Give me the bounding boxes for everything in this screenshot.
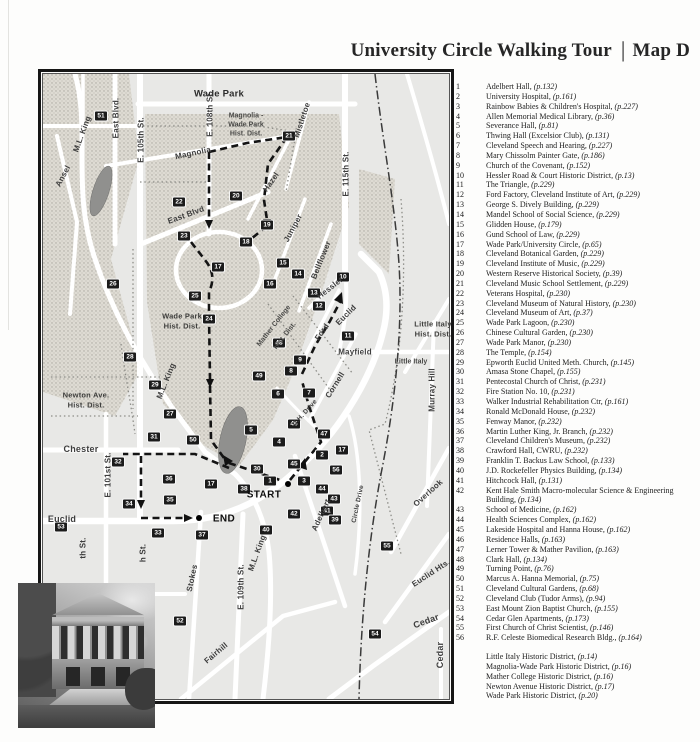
legend-item-number: 2 <box>456 92 486 102</box>
legend-item: 29Epworth Euclid United Meth. Church, (p… <box>456 358 696 368</box>
legend-item-number: 31 <box>456 377 486 387</box>
legend-item: 51Cleveland Cultural Gardens, (p.68) <box>456 584 696 594</box>
legend-item-number: 39 <box>456 456 486 466</box>
legend-item-name: Wade Park/University Circle, (p.65) <box>486 240 696 250</box>
legend-item: Newton Avenue Historic District, (p.17) <box>456 682 696 692</box>
legend-districts: Little Italy Historic District, (p.14)Ma… <box>456 652 696 701</box>
legend-item-number: 56 <box>456 633 486 643</box>
legend-item: 45Lakeside Hospital and Hanna House, (p.… <box>456 525 696 535</box>
legend-item: 52Cleveland Club (Tudor Arms), (p.94) <box>456 594 696 604</box>
legend-item-name: Church of the Covenant, (p.152) <box>486 161 696 171</box>
legend-item: 34Ronald McDonald House, (p.232) <box>456 407 696 417</box>
legend-item-number: 45 <box>456 525 486 535</box>
legend-item-name: Fire Station No. 10, (p.231) <box>486 387 696 397</box>
photo-entablature <box>52 617 144 626</box>
legend-item-name: Mather College Historic District, (p.16) <box>486 672 696 682</box>
legend-item: 50Marcus A. Hanna Memorial, (p.75) <box>456 574 696 584</box>
legend-item: 2University Hospital, (p.161) <box>456 92 696 102</box>
legend-item-name: Wade Park Historic District, (p.20) <box>486 691 696 701</box>
legend-item-name: Mandel School of Social Science, (p.229) <box>486 210 696 220</box>
legend-item: 32Fire Station No. 10, (p.231) <box>456 387 696 397</box>
book-page: University Circle Walking Tour|Map D <box>0 0 700 742</box>
legend-item: 21Cleveland Music School Settlement, (p.… <box>456 279 696 289</box>
legend-item: 30Amasa Stone Chapel, (p.155) <box>456 367 696 377</box>
legend-item-name: Rainbow Babies & Children's Hospital, (p… <box>486 102 696 112</box>
legend-item-number: 41 <box>456 476 486 486</box>
legend-item-name: Mary Chissolm Painter Gate, (p.186) <box>486 151 696 161</box>
legend-item-name: Severance Hall, (p.81) <box>486 121 696 131</box>
legend-item-number: 14 <box>456 210 486 220</box>
legend-item-number: 47 <box>456 545 486 555</box>
legend-item-number <box>456 652 486 662</box>
legend-item-name: Clark Hall, (p.134) <box>486 555 696 565</box>
legend-item: 24Cleveland Museum of Art, (p.37) <box>456 308 696 318</box>
legend-item: 16Gund School of Law, (p.229) <box>456 230 696 240</box>
legend-item-number: 54 <box>456 614 486 624</box>
legend-item-name: Turning Point, (p.76) <box>486 564 696 574</box>
legend-item: 44Health Sciences Complex, (p.162) <box>456 515 696 525</box>
photo-pediment <box>52 593 144 617</box>
legend-item-number: 11 <box>456 180 486 190</box>
legend-item-name: Glidden House, (p.179) <box>486 220 696 230</box>
legend-item: 3Rainbow Babies & Children's Hospital, (… <box>456 102 696 112</box>
legend-item: 46Residence Halls, (p.163) <box>456 535 696 545</box>
legend-item: 10Hessler Road & Court Historic District… <box>456 171 696 181</box>
legend-item-name: Newton Avenue Historic District, (p.17) <box>486 682 696 692</box>
legend-item-name: First Church of Christ Scientist, (p.146… <box>486 623 696 633</box>
legend-item-name: Marcus A. Hanna Memorial, (p.75) <box>486 574 696 584</box>
legend-item: 39Franklin T. Backus Law School, (p.133) <box>456 456 696 466</box>
legend-item: 55First Church of Christ Scientist, (p.1… <box>456 623 696 633</box>
legend-item-number <box>456 662 486 672</box>
legend-item-number: 34 <box>456 407 486 417</box>
legend-item-number: 21 <box>456 279 486 289</box>
legend-item-name: Cleveland Club (Tudor Arms), (p.94) <box>486 594 696 604</box>
legend-item-number: 5 <box>456 121 486 131</box>
legend-item: Little Italy Historic District, (p.14) <box>456 652 696 662</box>
legend-item-name: Thwing Hall (Excelsior Club), (p.131) <box>486 131 696 141</box>
legend-item: 15Glidden House, (p.179) <box>456 220 696 230</box>
legend-item-name: Adelbert Hall, (p.132) <box>486 82 696 92</box>
legend-item-name: Western Reserve Historical Society, (p.3… <box>486 269 696 279</box>
legend-item-number: 6 <box>456 131 486 141</box>
legend-item-name: The Triangle, (p.229) <box>486 180 696 190</box>
photo-tree-right <box>125 668 155 710</box>
legend-item-number: 12 <box>456 190 486 200</box>
legend-item-name: Cleveland Museum of Art, (p.37) <box>486 308 696 318</box>
legend-item: 23Cleveland Museum of Natural History, (… <box>456 299 696 309</box>
legend-item-number <box>456 672 486 682</box>
legend-item-number: 20 <box>456 269 486 279</box>
legend-item-number: 48 <box>456 555 486 565</box>
legend-item: 8Mary Chissolm Painter Gate, (p.186) <box>456 151 696 161</box>
legend-item: 25Wade Park Lagoon, (p.230) <box>456 318 696 328</box>
legend-item: 49Turning Point, (p.76) <box>456 564 696 574</box>
legend-item-name: Cleveland Speech and Hearing, (p.227) <box>486 141 696 151</box>
legend-item: 56R.F. Celeste Biomedical Research Bldg.… <box>456 633 696 643</box>
legend-item-number: 16 <box>456 230 486 240</box>
photo-door <box>66 667 80 686</box>
legend-item-name: Veterans Hospital, (p.230) <box>486 289 696 299</box>
legend-item-name: Martin Luther King, Jr. Branch, (p.232) <box>486 427 696 437</box>
legend-item-number <box>456 682 486 692</box>
legend-item-name: Cleveland Institute of Music, (p.229) <box>486 259 696 269</box>
legend-item-name: Crawford Hall, CWRU, (p.232) <box>486 446 696 456</box>
legend-item-name: Franklin T. Backus Law School, (p.133) <box>486 456 696 466</box>
legend-item-name: Amasa Stone Chapel, (p.155) <box>486 367 696 377</box>
legend-item-number: 40 <box>456 466 486 476</box>
legend-item: Magnolia-Wade Park Historic District, (p… <box>456 662 696 672</box>
title-map-label: Map D <box>633 40 690 61</box>
legend-item: 13George S. Dively Building, (p.229) <box>456 200 696 210</box>
legend-item-number: 52 <box>456 594 486 604</box>
legend-item-name: Kent Hale Smith Macro-molecular Science … <box>486 486 696 506</box>
legend-item-number: 3 <box>456 102 486 112</box>
legend-item: 14Mandel School of Social Science, (p.22… <box>456 210 696 220</box>
legend-item: Mather College Historic District, (p.16) <box>456 672 696 682</box>
legend-item-name: Wade Park Manor, (p.230) <box>486 338 696 348</box>
legend-item-name: Walker Industrial Rehabilitation Ctr, (p… <box>486 397 696 407</box>
legend-item-number: 28 <box>456 348 486 358</box>
legend-item-name: University Hospital, (p.161) <box>486 92 696 102</box>
legend-item-name: Gund School of Law, (p.229) <box>486 230 696 240</box>
legend-item-name: Cedar Glen Apartments, (p.173) <box>486 614 696 624</box>
legend-item-number: 24 <box>456 308 486 318</box>
legend-item: 37Cleveland Children's Museum, (p.232) <box>456 436 696 446</box>
legend-item-number: 18 <box>456 249 486 259</box>
legend: 1Adelbert Hall, (p.132)2University Hospi… <box>456 82 696 701</box>
legend-item-name: Ford Factory, Cleveland Institute of Art… <box>486 190 696 200</box>
legend-item-name: Cleveland Botanical Garden, (p.229) <box>486 249 696 259</box>
legend-item-number: 35 <box>456 417 486 427</box>
legend-item-number: 7 <box>456 141 486 151</box>
legend-item-name: Ronald McDonald House, (p.232) <box>486 407 696 417</box>
legend-item-number: 30 <box>456 367 486 377</box>
legend-item-name: Hessler Road & Court Historic District, … <box>486 171 696 181</box>
legend-item: 54Cedar Glen Apartments, (p.173) <box>456 614 696 624</box>
legend-item: 48Clark Hall, (p.134) <box>456 555 696 565</box>
legend-item-number: 27 <box>456 338 486 348</box>
legend-item-number: 9 <box>456 161 486 171</box>
legend-item: 28The Temple, (p.154) <box>456 348 696 358</box>
legend-item-name: George S. Dively Building, (p.229) <box>486 200 696 210</box>
legend-item-number: 43 <box>456 505 486 515</box>
legend-item-name: Allen Memorial Medical Library, (p.36) <box>486 112 696 122</box>
legend-item: 26Chinese Cultural Garden, (p.230) <box>456 328 696 338</box>
legend-item-name: Cleveland Music School Settlement, (p.22… <box>486 279 696 289</box>
legend-item-number: 32 <box>456 387 486 397</box>
legend-item: 6Thwing Hall (Excelsior Club), (p.131) <box>456 131 696 141</box>
legend-item-name: Fenway Manor, (p.232) <box>486 417 696 427</box>
legend-item-name: The Temple, (p.154) <box>486 348 696 358</box>
legend-item: 5Severance Hall, (p.81) <box>456 121 696 131</box>
legend-item: 53East Mount Zion Baptist Church, (p.155… <box>456 604 696 614</box>
legend-item-number: 1 <box>456 82 486 92</box>
legend-item-number: 38 <box>456 446 486 456</box>
legend-item-name: Pentecostal Church of Christ, (p.231) <box>486 377 696 387</box>
legend-item-number: 15 <box>456 220 486 230</box>
legend-item-number: 49 <box>456 564 486 574</box>
legend-item-name: R.F. Celeste Biomedical Research Bldg., … <box>486 633 696 643</box>
legend-item-number: 53 <box>456 604 486 614</box>
title-separator: | <box>621 37 626 62</box>
photo-columns <box>52 626 144 659</box>
legend-item-number: 13 <box>456 200 486 210</box>
legend-item-number: 44 <box>456 515 486 525</box>
legend-item-number: 22 <box>456 289 486 299</box>
legend-item-number: 26 <box>456 328 486 338</box>
legend-item-name: Little Italy Historic District, (p.14) <box>486 652 696 662</box>
legend-item: 22Veterans Hospital, (p.230) <box>456 289 696 299</box>
legend-item-name: Lerner Tower & Mather Pavilion, (p.163) <box>486 545 696 555</box>
legend-item-name: Residence Halls, (p.163) <box>486 535 696 545</box>
legend-item-name: School of Medicine, (p.162) <box>486 505 696 515</box>
legend-item: 9Church of the Covenant, (p.152) <box>456 161 696 171</box>
legend-item-name: Cleveland Children's Museum, (p.232) <box>486 436 696 446</box>
legend-item-name: East Mount Zion Baptist Church, (p.155) <box>486 604 696 614</box>
legend-item: 12Ford Factory, Cleveland Institute of A… <box>456 190 696 200</box>
legend-item-number: 37 <box>456 436 486 446</box>
legend-item-number: 17 <box>456 240 486 250</box>
legend-item-number: 4 <box>456 112 486 122</box>
legend-item: 38Crawford Hall, CWRU, (p.232) <box>456 446 696 456</box>
legend-item-number: 29 <box>456 358 486 368</box>
page-title: University Circle Walking Tour|Map D <box>0 36 690 62</box>
legend-item: 41Hitchcock Hall, (p.131) <box>456 476 696 486</box>
legend-item-name: Magnolia-Wade Park Historic District, (p… <box>486 662 696 672</box>
legend-item: 42Kent Hale Smith Macro-molecular Scienc… <box>456 486 696 506</box>
legend-item: 20Western Reserve Historical Society, (p… <box>456 269 696 279</box>
legend-item-number: 8 <box>456 151 486 161</box>
legend-item-number: 23 <box>456 299 486 309</box>
legend-item-name: Wade Park Lagoon, (p.230) <box>486 318 696 328</box>
legend-item-number: 10 <box>456 171 486 181</box>
legend-item-name: Cleveland Cultural Gardens, (p.68) <box>486 584 696 594</box>
legend-item: 18Cleveland Botanical Garden, (p.229) <box>456 249 696 259</box>
legend-item: 4Allen Memorial Medical Library, (p.36) <box>456 112 696 122</box>
legend-item-number <box>456 691 486 701</box>
legend-item-name: Health Sciences Complex, (p.162) <box>486 515 696 525</box>
legend-item: 7Cleveland Speech and Hearing, (p.227) <box>456 141 696 151</box>
legend-item-name: J.D. Rockefeller Physics Building, (p.13… <box>486 466 696 476</box>
legend-item-number: 51 <box>456 584 486 594</box>
legend-item-name: Lakeside Hospital and Hanna House, (p.16… <box>486 525 696 535</box>
legend-item-name: Hitchcock Hall, (p.131) <box>486 476 696 486</box>
legend-item: 19Cleveland Institute of Music, (p.229) <box>456 259 696 269</box>
photo-lawn <box>18 705 155 728</box>
legend-item-name: Epworth Euclid United Meth. Church, (p.1… <box>486 358 696 368</box>
legend-item-number: 46 <box>456 535 486 545</box>
legend-item: 17Wade Park/University Circle, (p.65) <box>456 240 696 250</box>
legend-item-number: 55 <box>456 623 486 633</box>
legend-item: 36Martin Luther King, Jr. Branch, (p.232… <box>456 427 696 437</box>
legend-item: 40J.D. Rockefeller Physics Building, (p.… <box>456 466 696 476</box>
photo-tree-left <box>18 583 56 697</box>
legend-item-name: Chinese Cultural Garden, (p.230) <box>486 328 696 338</box>
legend-item: 47Lerner Tower & Mather Pavilion, (p.163… <box>456 545 696 555</box>
legend-item: 27Wade Park Manor, (p.230) <box>456 338 696 348</box>
photo-door <box>91 667 105 686</box>
legend-item: 11The Triangle, (p.229) <box>456 180 696 190</box>
title-main: University Circle Walking Tour <box>351 40 612 61</box>
legend-item: 35Fenway Manor, (p.232) <box>456 417 696 427</box>
legend-item-number: 50 <box>456 574 486 584</box>
legend-item: Wade Park Historic District, (p.20) <box>456 691 696 701</box>
legend-item-number: 42 <box>456 486 486 506</box>
legend-item-number: 36 <box>456 427 486 437</box>
legend-item-name: Cleveland Museum of Natural History, (p.… <box>486 299 696 309</box>
legend-item: 33Walker Industrial Rehabilitation Ctr, … <box>456 397 696 407</box>
building-photo <box>18 583 155 728</box>
legend-item: 1Adelbert Hall, (p.132) <box>456 82 696 92</box>
legend-item-number: 33 <box>456 397 486 407</box>
legend-item: 43School of Medicine, (p.162) <box>456 505 696 515</box>
legend-item-number: 19 <box>456 259 486 269</box>
legend-item-number: 25 <box>456 318 486 328</box>
legend-items: 1Adelbert Hall, (p.132)2University Hospi… <box>456 82 696 643</box>
legend-item: 31Pentecostal Church of Christ, (p.231) <box>456 377 696 387</box>
